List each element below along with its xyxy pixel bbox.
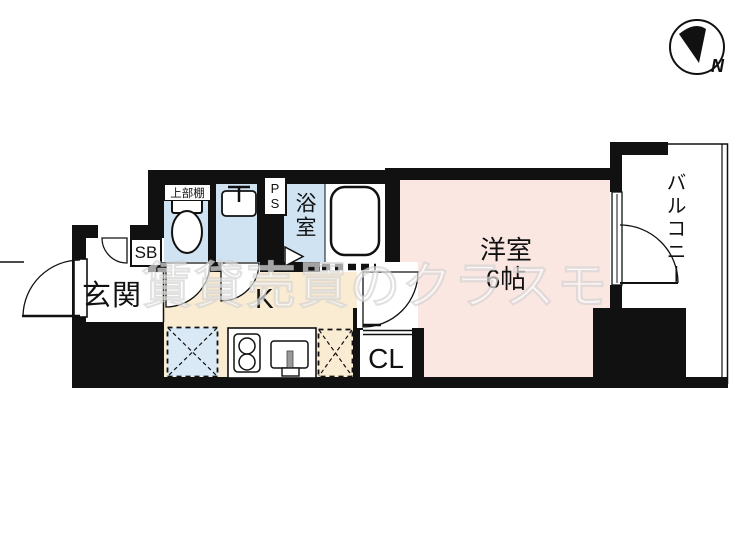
pipe-space-label: PS (268, 181, 283, 211)
kitchen-label: K (255, 283, 274, 315)
washer-space-icon (168, 328, 218, 377)
bath-door-triangle-icon (285, 247, 303, 266)
western-room-size: 6帖 (446, 265, 566, 294)
compass-north-label: N (711, 56, 724, 77)
sink-icon (222, 187, 256, 216)
western-room-name: 洋室 (446, 236, 566, 265)
bathtub-icon (331, 187, 379, 255)
upper-shelf-label: 上部棚 (170, 185, 205, 201)
bathroom-label: 浴室 (289, 192, 319, 240)
washroom-door-swing (221, 263, 259, 301)
shoe-box-label: SB (135, 243, 158, 263)
entrance-inner-door-swing (102, 238, 127, 263)
kitchen-counter-icon (228, 328, 316, 378)
shoe-box: SB (130, 238, 162, 267)
floor-plan: SB 上部棚 PS CL (0, 0, 750, 550)
front-door-swing (23, 260, 80, 316)
fridge-space-icon (319, 330, 353, 377)
western-room-label: 洋室 6帖 (446, 236, 566, 294)
toilet-icon (172, 199, 202, 253)
entrance-label: 玄関 (82, 272, 142, 314)
pipe-space-box: PS (263, 176, 287, 216)
upper-shelf-box: 上部棚 (164, 184, 211, 201)
balcony-label: バルコニー (660, 172, 689, 287)
toilet-door-swing (166, 263, 210, 307)
kitchen-western-door-swing (363, 272, 418, 327)
